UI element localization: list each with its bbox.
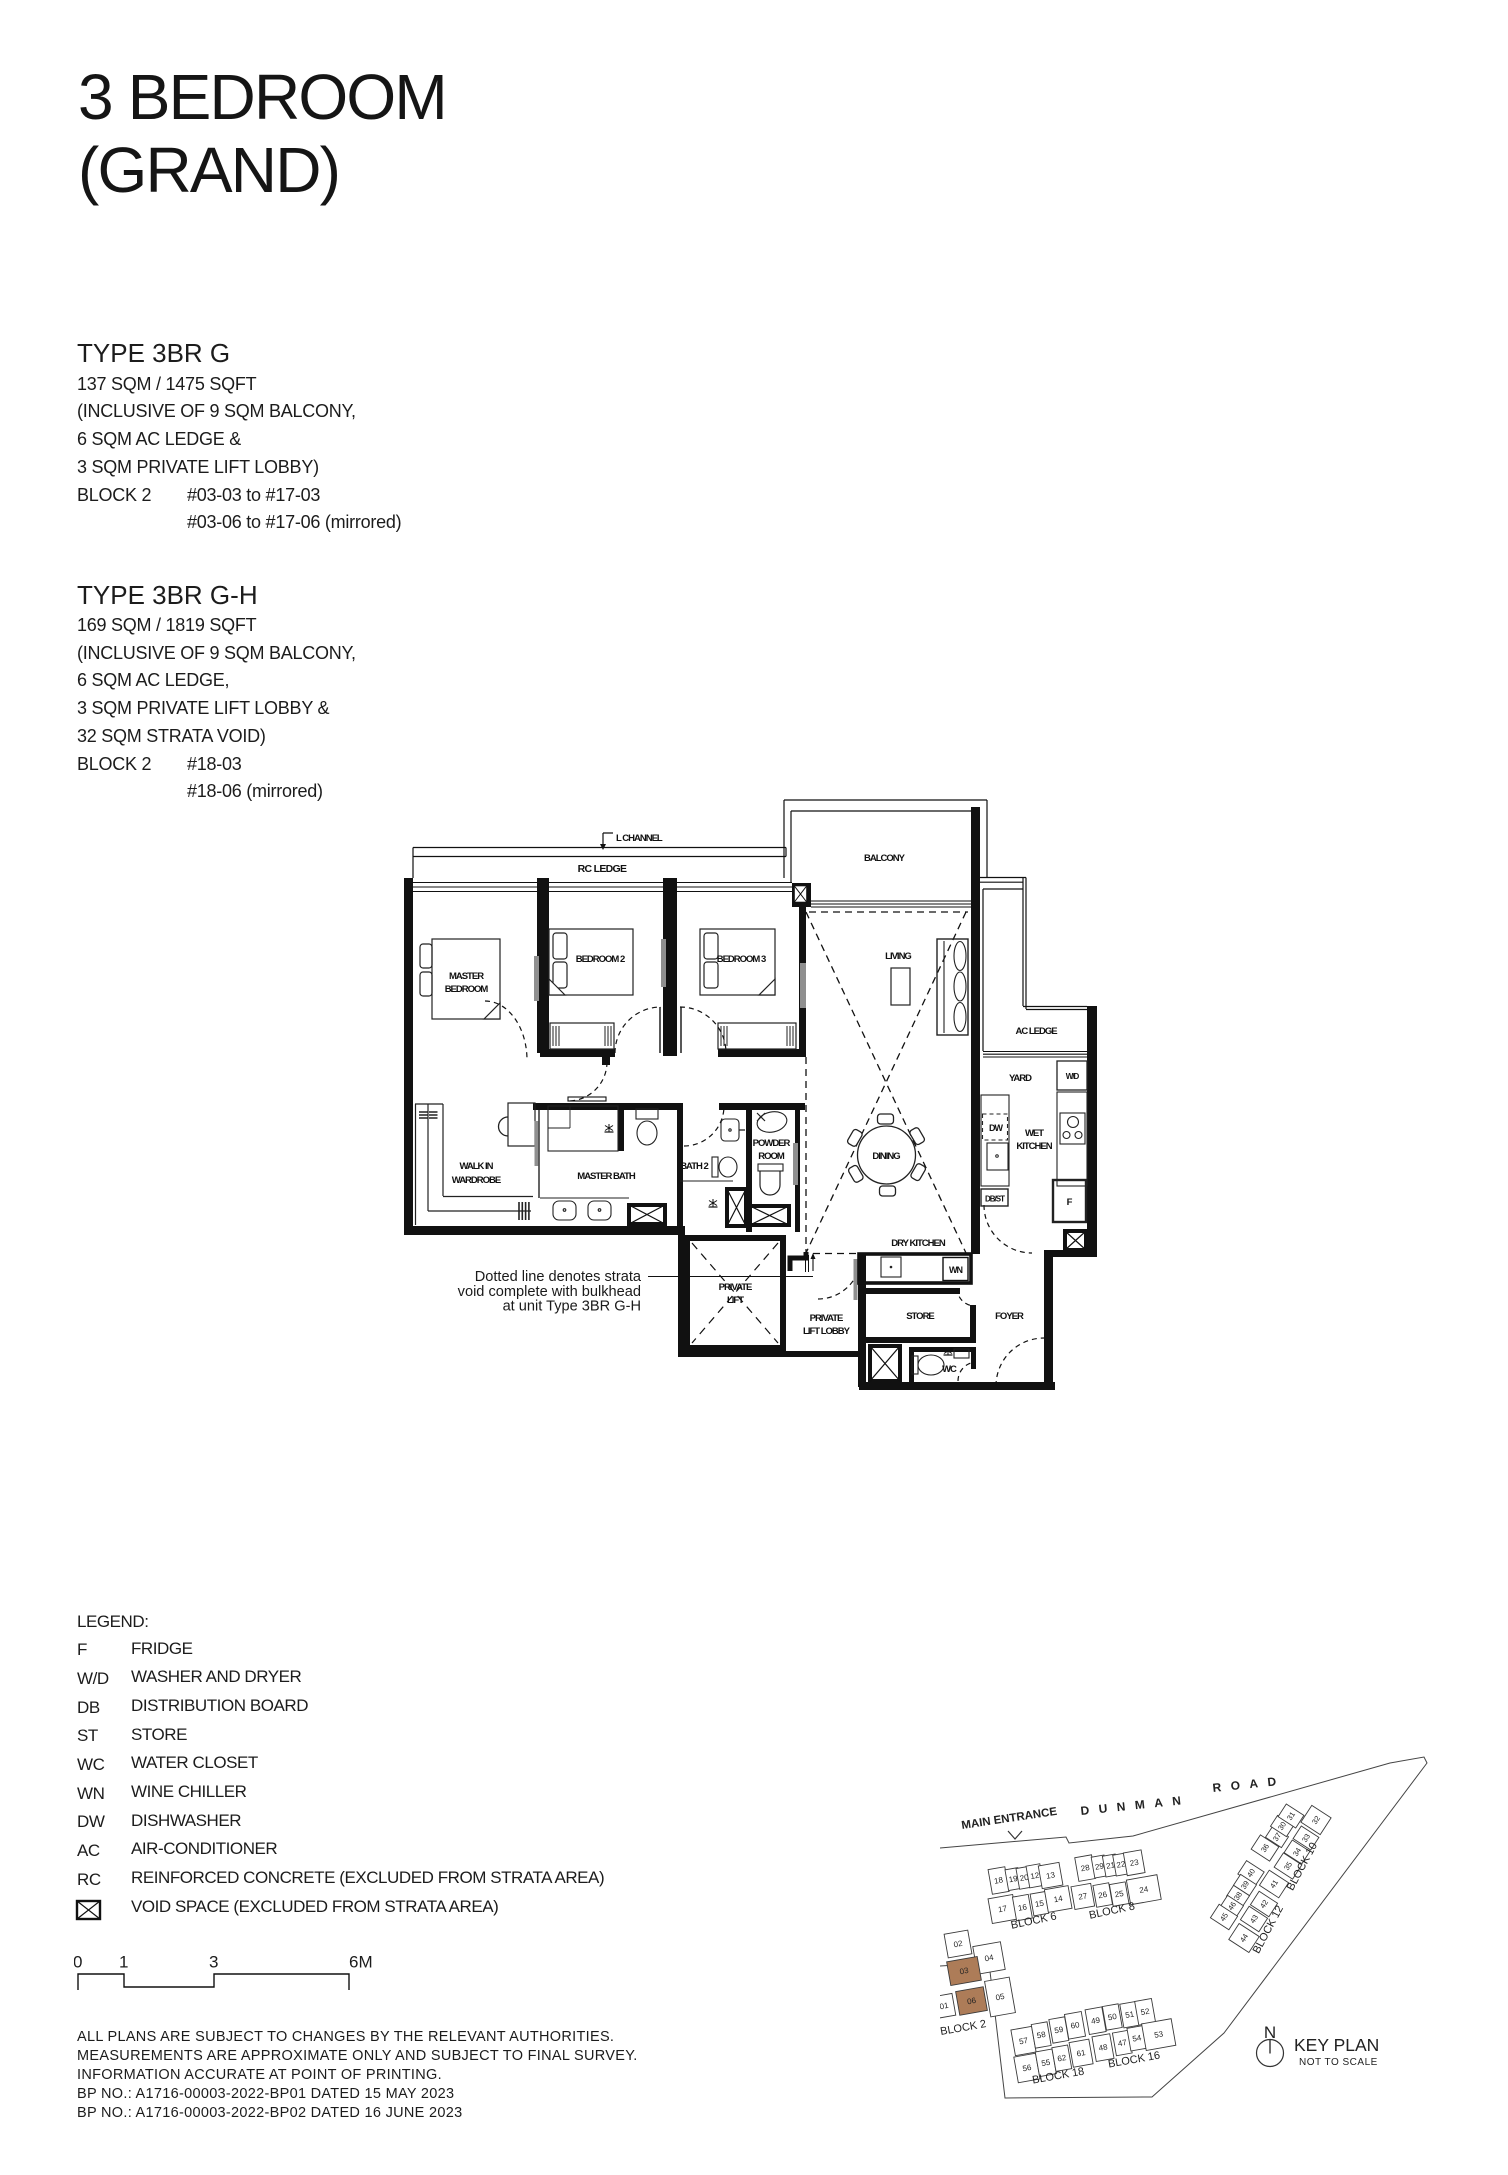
svg-text:ROAD: ROAD <box>1212 1773 1286 1795</box>
svg-text:FOYER: FOYER <box>995 1311 1024 1322</box>
svg-text:MASTER BATH: MASTER BATH <box>577 1171 636 1182</box>
svg-text:6M: 6M <box>349 1953 373 1972</box>
svg-text:1: 1 <box>119 1953 128 1972</box>
svg-text:WN: WN <box>949 1265 962 1275</box>
svg-text:PRIVATE: PRIVATE <box>719 1282 752 1293</box>
svg-text:POWDER: POWDER <box>753 1138 791 1149</box>
svg-text:L CHANNEL: L CHANNEL <box>616 833 663 844</box>
svg-text:RC LEDGE: RC LEDGE <box>578 863 627 875</box>
svg-text:3: 3 <box>209 1953 218 1972</box>
svg-text:BALCONY: BALCONY <box>864 853 906 864</box>
svg-text:AC LEDGE: AC LEDGE <box>1015 1026 1057 1037</box>
svg-text:DINING: DINING <box>872 1151 900 1162</box>
svg-text:W/D: W/D <box>1066 1072 1080 1081</box>
svg-text:WALK IN: WALK IN <box>459 1161 493 1172</box>
svg-text:BEDROOM 2: BEDROOM 2 <box>576 954 625 965</box>
svg-text:BLOCK 16: BLOCK 16 <box>1107 2050 1161 2071</box>
svg-text:KITCHEN: KITCHEN <box>1016 1141 1052 1152</box>
svg-text:ROOM: ROOM <box>758 1151 785 1162</box>
svg-text:BLOCK 2: BLOCK 2 <box>940 2018 987 2038</box>
svg-text:LIVING: LIVING <box>885 951 911 962</box>
svg-text:STORE: STORE <box>906 1311 934 1322</box>
svg-text:DW: DW <box>989 1123 1003 1133</box>
svg-text:at unit Type 3BR G-H: at unit Type 3BR G-H <box>503 1299 641 1315</box>
svg-text:PRIVATE: PRIVATE <box>810 1313 843 1324</box>
svg-text:KEY PLAN: KEY PLAN <box>1294 2035 1379 2055</box>
svg-text:LIFT LOBBY: LIFT LOBBY <box>803 1326 851 1337</box>
svg-text:N: N <box>1264 2023 1276 2042</box>
svg-text:0: 0 <box>74 1953 82 1972</box>
svg-text:MASTER: MASTER <box>449 971 484 982</box>
svg-text:MAIN ENTRANCE: MAIN ENTRANCE <box>961 1806 1059 1832</box>
svg-text:BATH 2: BATH 2 <box>680 1161 708 1172</box>
svg-text:WET: WET <box>1025 1128 1044 1139</box>
svg-text:NOT TO SCALE: NOT TO SCALE <box>1299 2057 1378 2068</box>
svg-text:DRY KITCHEN: DRY KITCHEN <box>891 1238 946 1249</box>
svg-text:DB/ST: DB/ST <box>985 1195 1005 1204</box>
svg-text:WARDROBE: WARDROBE <box>452 1175 501 1186</box>
svg-text:YARD: YARD <box>1009 1073 1032 1084</box>
svg-text:DUNMAN: DUNMAN <box>1080 1793 1191 1818</box>
svg-text:BEDROOM: BEDROOM <box>445 984 489 995</box>
svg-text:LIFT: LIFT <box>727 1295 744 1306</box>
svg-text:Dotted line denotes strata: Dotted line denotes strata <box>475 1269 642 1285</box>
svg-text:WC: WC <box>942 1364 957 1375</box>
svg-text:BEDROOM 3: BEDROOM 3 <box>717 954 766 965</box>
svg-text:F: F <box>1067 1197 1073 1208</box>
